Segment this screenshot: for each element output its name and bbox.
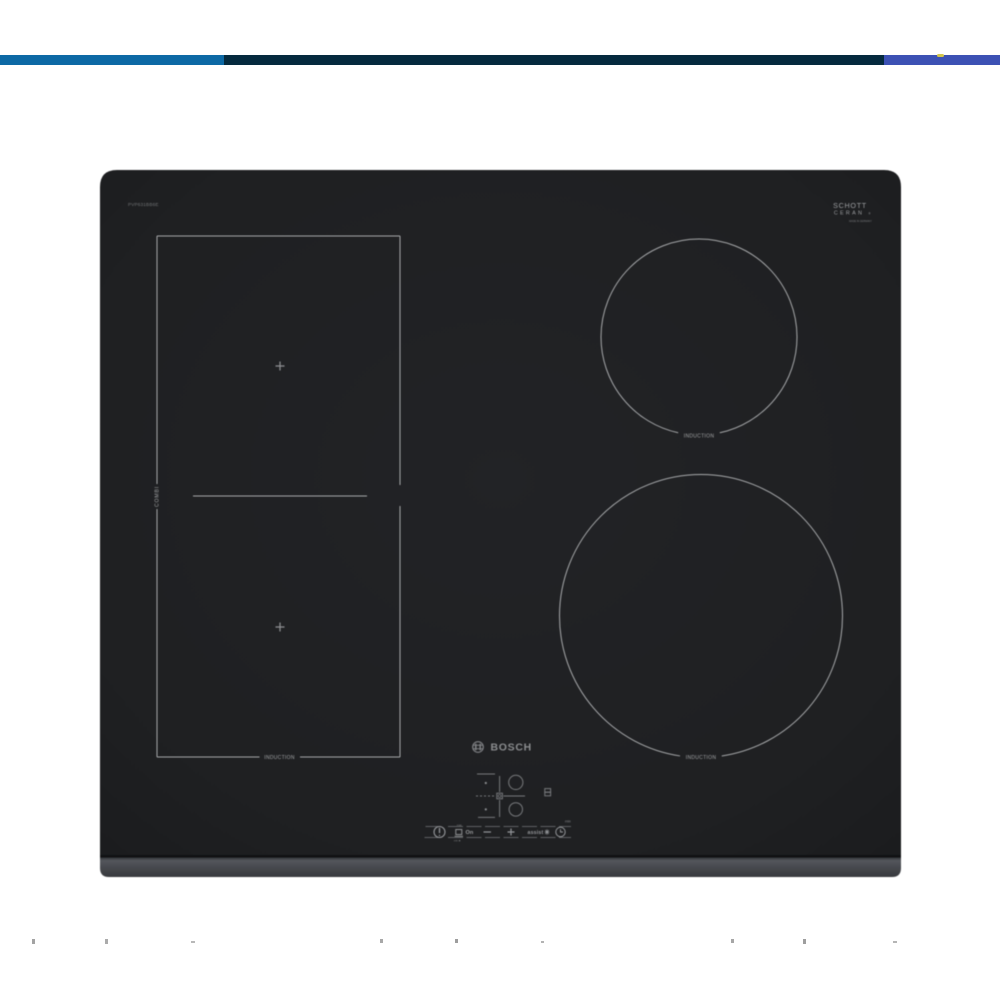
- svg-text:PVP631BB6E: PVP631BB6E: [128, 202, 159, 207]
- svg-text:COMBI: COMBI: [155, 486, 161, 507]
- svg-text:SCHOTT: SCHOTT: [833, 201, 867, 210]
- svg-text:On: On: [466, 830, 474, 836]
- svg-text:CERAN: CERAN: [834, 210, 864, 216]
- svg-text:BOSCH: BOSCH: [491, 742, 532, 754]
- svg-text:assist: assist: [528, 830, 544, 836]
- svg-text:min ■: min ■: [454, 839, 461, 843]
- svg-text:INDUCTION: INDUCTION: [264, 755, 295, 761]
- svg-text:MADE IN GERMANY: MADE IN GERMANY: [849, 220, 872, 223]
- svg-text:min: min: [565, 820, 571, 824]
- svg-text:INDUCTION: INDUCTION: [686, 755, 717, 761]
- svg-text:max: max: [457, 824, 463, 827]
- svg-text:INDUCTION: INDUCTION: [684, 433, 715, 439]
